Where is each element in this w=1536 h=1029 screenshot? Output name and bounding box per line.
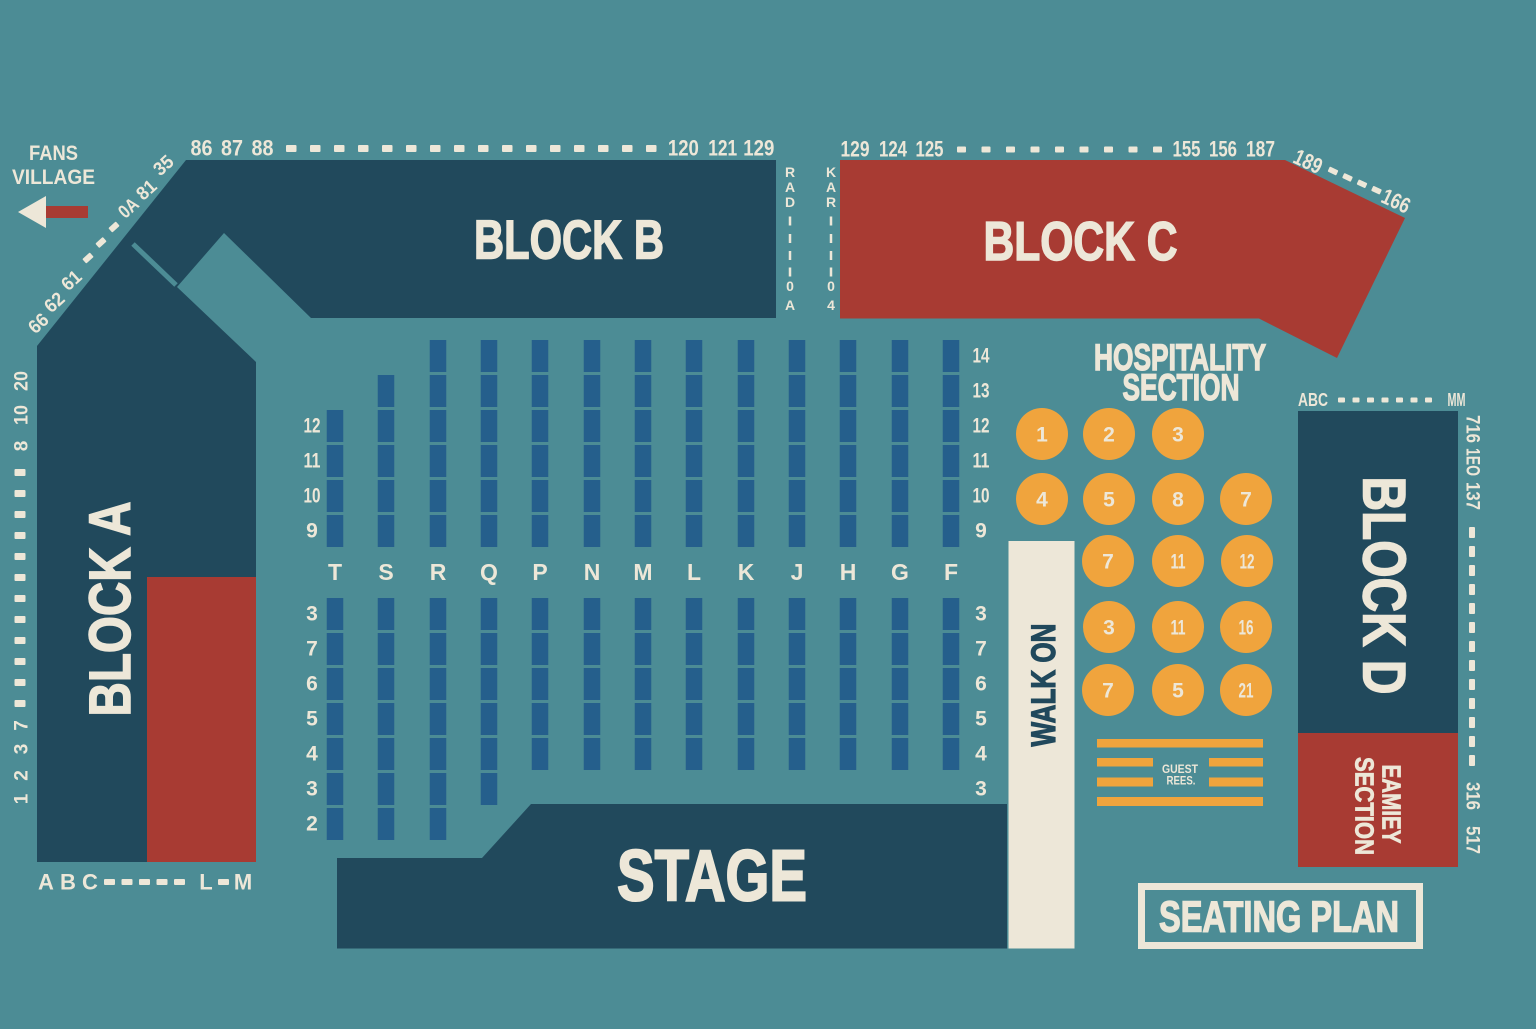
svg-text:12: 12 [1240,551,1255,574]
svg-text:5: 5 [306,708,318,731]
svg-text:0: 0 [827,278,835,294]
svg-text:129: 129 [743,136,774,161]
svg-text:13: 13 [973,380,990,403]
svg-text:7: 7 [306,638,318,661]
svg-text:4: 4 [975,743,987,766]
svg-text:16: 16 [1239,617,1254,640]
svg-text:87: 87 [221,136,243,161]
svg-text:D: D [785,194,795,210]
svg-text:88: 88 [252,136,274,161]
svg-text:8: 8 [1172,489,1184,512]
svg-text:3: 3 [306,603,318,626]
svg-text:155: 155 [1173,137,1201,162]
svg-text:11: 11 [1171,617,1186,640]
svg-text:21: 21 [1239,680,1254,703]
svg-text:3: 3 [12,744,33,755]
svg-text:STAGE: STAGE [617,837,807,917]
svg-text:124: 124 [879,137,908,162]
svg-text:5: 5 [1172,680,1184,703]
svg-text:120: 120 [668,136,699,161]
svg-text:0: 0 [786,278,794,294]
svg-text:3: 3 [306,778,318,801]
svg-text:BLOCK D: BLOCK D [1351,477,1418,695]
svg-text:125: 125 [916,137,944,162]
svg-text:137: 137 [1462,482,1483,510]
svg-text:156: 156 [1209,137,1237,162]
svg-text:R: R [785,164,795,180]
svg-text:121: 121 [708,136,737,161]
svg-text:12: 12 [973,415,990,438]
svg-text:3: 3 [975,603,987,626]
svg-text:10: 10 [973,485,990,508]
svg-text:7: 7 [1240,489,1252,512]
svg-text:6: 6 [306,673,318,696]
svg-text:20: 20 [12,371,33,391]
svg-text:J: J [791,559,804,585]
svg-text:R: R [430,559,447,585]
svg-text:6: 6 [975,673,987,696]
svg-text:7: 7 [12,720,33,731]
svg-text:Q: Q [480,559,498,585]
svg-text:2: 2 [306,813,318,836]
svg-text:11: 11 [1171,551,1186,574]
svg-text:7: 7 [975,638,987,661]
svg-text:H: H [840,559,857,585]
svg-text:K: K [738,559,755,585]
svg-text:A: A [785,297,795,313]
svg-text:7: 7 [1102,680,1114,703]
svg-text:9: 9 [975,520,987,543]
svg-text:1EO: 1EO [1462,448,1483,476]
svg-text:S: S [378,559,393,585]
svg-text:11: 11 [304,450,321,473]
svg-text:12: 12 [304,415,321,438]
svg-text:G: G [891,559,909,585]
svg-text:1: 1 [1036,424,1048,447]
svg-text:SECTION: SECTION [1349,757,1379,855]
svg-text:3: 3 [1103,617,1115,640]
svg-text:REES.: REES. [1167,774,1196,788]
svg-text:10: 10 [304,485,321,508]
svg-text:N: N [584,559,601,585]
svg-text:8: 8 [12,441,33,452]
svg-text:FANS: FANS [29,142,78,165]
svg-text:T: T [328,559,342,585]
svg-text:P: P [532,559,547,585]
svg-text:BLOCK C: BLOCK C [984,210,1178,272]
svg-text:129: 129 [841,137,870,162]
svg-text:M: M [633,559,652,585]
svg-text:EAMIEY: EAMIEY [1377,765,1407,844]
svg-text:11: 11 [973,450,990,473]
svg-text:4: 4 [1036,489,1048,512]
svg-text:WALK ON: WALK ON [1025,624,1063,747]
svg-text:VILLAGE: VILLAGE [12,166,95,189]
svg-text:716: 716 [1462,415,1483,443]
svg-text:7: 7 [1102,551,1114,574]
svg-text:517: 517 [1462,826,1483,854]
svg-text:3: 3 [975,778,987,801]
svg-text:MM: MM [1448,390,1466,410]
svg-text:A: A [38,870,54,895]
svg-text:A: A [785,179,795,195]
svg-text:4: 4 [306,743,318,766]
svg-text:B: B [60,870,76,895]
svg-text:316: 316 [1462,782,1483,810]
svg-text:L: L [687,559,701,585]
svg-text:187: 187 [1246,137,1275,162]
svg-text:1: 1 [12,793,33,804]
svg-text:L: L [199,870,212,895]
svg-text:5: 5 [1103,489,1115,512]
svg-text:3: 3 [1172,424,1184,447]
svg-text:C: C [82,870,98,895]
svg-text:BLOCK B: BLOCK B [474,209,664,271]
svg-text:5: 5 [975,708,987,731]
svg-text:K: K [826,164,836,180]
svg-text:M: M [234,870,252,895]
svg-text:4: 4 [827,297,835,313]
svg-text:BLOCK A: BLOCK A [78,502,143,717]
svg-text:2: 2 [1103,424,1115,447]
svg-text:9: 9 [306,520,318,543]
svg-text:ABC: ABC [1298,390,1328,410]
svg-text:SECTION: SECTION [1123,367,1240,408]
svg-text:SEATING PLAN: SEATING PLAN [1159,893,1399,942]
svg-text:A: A [826,179,836,195]
svg-text:14: 14 [973,345,990,368]
svg-text:86: 86 [191,136,213,161]
svg-text:10: 10 [12,405,33,425]
svg-text:R: R [826,194,836,210]
svg-text:F: F [944,559,958,585]
svg-text:2: 2 [12,770,33,781]
